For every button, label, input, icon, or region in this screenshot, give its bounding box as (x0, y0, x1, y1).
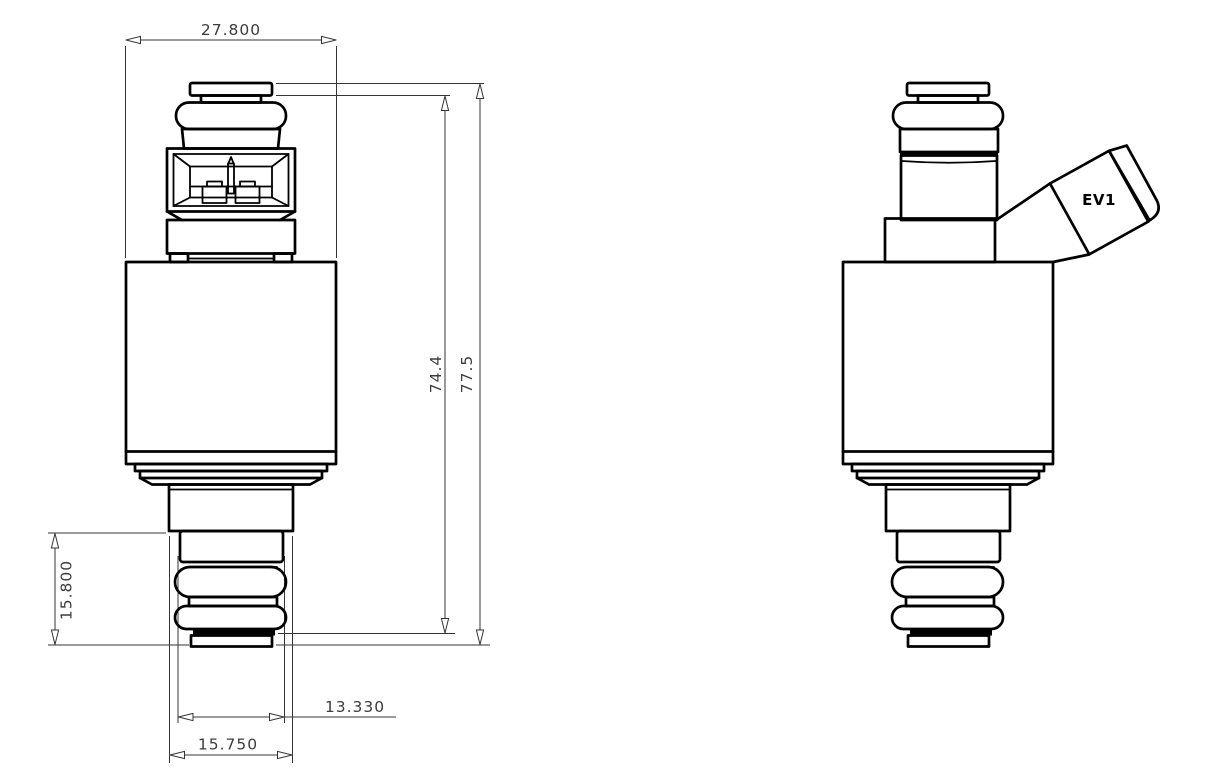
inlet-cap (907, 83, 989, 96)
nozzle-tip (191, 636, 272, 647)
injector-body (126, 262, 336, 464)
nozzle-tip (908, 636, 989, 647)
arrowhead-up-icon (441, 96, 448, 111)
dimension-label-body-width: 27.800 (201, 21, 261, 39)
arrowhead-up-icon (51, 534, 58, 549)
dimension-label-inner-height: 74.4 (427, 355, 445, 394)
inlet-cap (190, 83, 272, 96)
connector-strut-lower (1053, 255, 1089, 263)
terminal-pin-right (236, 187, 260, 204)
nozzle-shaft (180, 531, 283, 562)
arrowhead-left-icon (170, 751, 185, 758)
nozzle-upper (169, 485, 293, 532)
connector-strut-upper (997, 184, 1050, 220)
nozzle-shaft (897, 531, 1000, 562)
dimension-seal-diameter: 15.750 (170, 536, 293, 763)
coil-housing (167, 220, 295, 254)
nozzle-upper (886, 485, 1010, 532)
arrowhead-down-icon (476, 630, 483, 645)
dimension-label-lower-length: 15.800 (58, 560, 76, 620)
lower-oring-2 (892, 606, 1003, 629)
connector-label: EV1 (1082, 191, 1116, 209)
terminal-pin-left (203, 187, 227, 204)
dimension-body-width: 27.800 (126, 21, 337, 258)
neck-cylinder (901, 156, 997, 221)
neck-upper (900, 129, 998, 152)
arrowhead-up-icon (476, 84, 483, 99)
dimension-lines (170, 536, 293, 763)
coil-housing (885, 219, 995, 263)
upper-oring (176, 103, 286, 130)
injector-body (843, 262, 1053, 464)
side-injector: EV1 (843, 83, 1164, 647)
flange-step-2 (857, 471, 1039, 478)
neck (182, 129, 280, 149)
drawing-page: 27.800 74.4 77.5 15.800 (0, 0, 1210, 783)
front-dimensions: 27.800 74.4 77.5 15.800 (48, 21, 490, 763)
arrowhead-right-icon (278, 751, 293, 758)
lower-oring-1 (892, 567, 1003, 597)
neck-curve-line (902, 161, 996, 163)
arrowhead-down-icon (51, 630, 58, 645)
arrowhead-down-icon (441, 619, 448, 634)
lower-oring-2 (175, 606, 286, 629)
connector-socket (167, 149, 295, 221)
flange-step-2 (140, 471, 322, 478)
dimension-overall-height: 77.5 (276, 84, 490, 646)
front-view: 27.800 74.4 77.5 15.800 (48, 21, 490, 763)
socket-key-tip (228, 157, 233, 164)
upper-oring (893, 103, 1003, 130)
arrowhead-left-icon (126, 36, 141, 43)
front-injector (126, 83, 336, 647)
dimension-label-overall-height: 77.5 (458, 355, 476, 394)
connector-mouth (1109, 142, 1164, 221)
dimension-inner-height: 74.4 (276, 96, 455, 634)
lower-oring-1 (175, 567, 286, 597)
socket-key (228, 164, 234, 194)
dimension-label-shaft-diameter: 13.330 (325, 698, 385, 716)
arrowhead-right-icon (322, 36, 337, 43)
dimension-label-seal-diameter: 15.750 (198, 736, 258, 754)
side-view: EV1 (843, 83, 1164, 647)
arrowhead-right-icon (270, 713, 285, 720)
arrowhead-left-icon (179, 713, 194, 720)
drawing-canvas: 27.800 74.4 77.5 15.800 (0, 0, 1210, 783)
dimension-lower-length: 15.800 (48, 533, 189, 645)
